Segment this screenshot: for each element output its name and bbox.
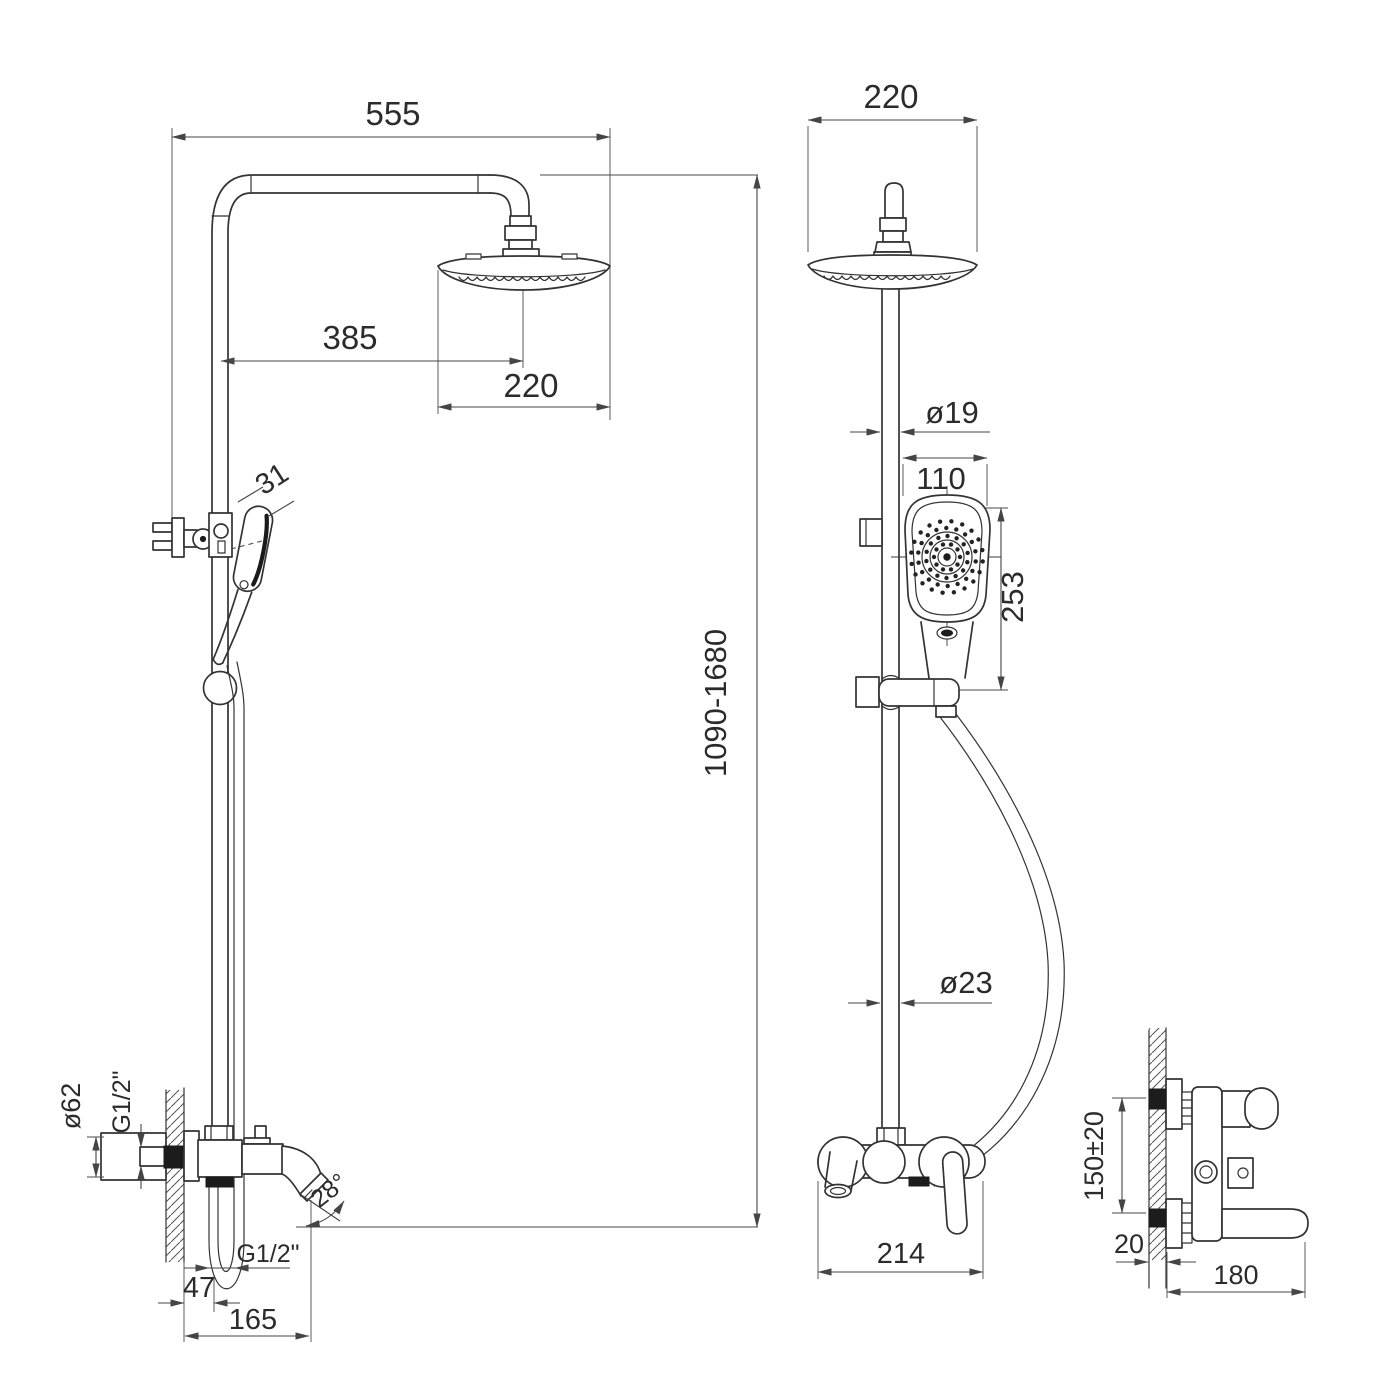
dim-rail-diameter-label: ø19 — [925, 395, 978, 430]
slider-bracket — [856, 676, 959, 718]
dim-head-offset: 385 — [221, 319, 523, 361]
mixer-detail-handle — [1245, 1088, 1278, 1129]
side-view: 220 ø19 110 253 ø23 214 — [808, 78, 1064, 1279]
dim-rail-diameter: ø19 — [850, 395, 990, 432]
spout-outlet — [825, 1185, 851, 1198]
dim-head-width-label: 220 — [863, 78, 918, 115]
rain-shower-head-side — [808, 255, 977, 289]
dim-spout-reach: 165 — [185, 1304, 309, 1336]
dim-head-offset-label: 385 — [322, 319, 377, 356]
technical-drawing: 555 385 220 31 1090-1680 ø62 G1/2" — [0, 0, 1400, 1400]
dim-hand-shower-length-label: 253 — [995, 571, 1030, 623]
dim-escutcheon-diameter: ø62 — [56, 1083, 104, 1177]
shower-hose-side — [929, 714, 1064, 1186]
dim-inlet-spacing: 150±20 — [1079, 1098, 1146, 1213]
wall-supply-connection — [101, 1131, 199, 1181]
dim-head-width: 220 — [808, 78, 977, 120]
dim-hose-thread: G1/2" — [184, 1240, 300, 1268]
shower-column-pipe — [212, 175, 529, 1128]
dim-inlet-spacing-label: 150±20 — [1079, 1111, 1109, 1201]
dim-hand-shower-length: 253 — [995, 508, 1030, 690]
hose-outlet-front — [206, 1177, 233, 1187]
dim-arm-width: 555 — [172, 95, 610, 137]
dim-pipe-diameter-label: ø23 — [939, 965, 992, 1000]
wall-bracket — [153, 513, 232, 557]
hand-shower-side-view — [891, 486, 1001, 678]
wall-section-front — [166, 1088, 184, 1262]
hose-outlet-side — [909, 1177, 929, 1186]
mixer-side-view: 150±20 20 180 — [1079, 1028, 1308, 1298]
dim-wall-thickness-label: 20 — [1114, 1229, 1144, 1259]
wall-section-detail — [1149, 1028, 1166, 1288]
dim-spout-offset: 47 — [158, 1272, 240, 1304]
wall-seal — [164, 1146, 184, 1168]
front-view: 555 385 220 31 1090-1680 ø62 G1/2" — [56, 95, 758, 1342]
dim-escutcheon-diameter-label: ø62 — [56, 1083, 86, 1130]
rain-head-pivot-knob — [874, 183, 911, 259]
rain-shower-head-front — [438, 254, 610, 290]
dim-arm-width-label: 555 — [365, 95, 420, 132]
dim-hose-thread-label: G1/2" — [236, 1240, 299, 1268]
dim-hand-shower-diameter: 31 — [238, 457, 294, 516]
dim-hand-shower-width-label: 110 — [916, 461, 965, 496]
dim-head-diameter-label: 220 — [503, 367, 558, 404]
dim-spout-offset-label: 47 — [183, 1272, 215, 1304]
mixer-valve — [863, 1141, 905, 1183]
mixer-detail-spout — [1222, 1209, 1308, 1238]
dim-column-height-label: 1090-1680 — [698, 629, 733, 777]
dim-head-diameter: 220 — [438, 367, 610, 407]
dim-mixer-width-label: 214 — [877, 1238, 925, 1270]
shower-hose-front — [209, 662, 244, 1289]
mixer-detail-body — [1192, 1087, 1308, 1241]
mixer-side-front — [818, 1128, 985, 1234]
mixer-detail-diverter — [1228, 1158, 1253, 1188]
hand-shower-holder-hook — [860, 519, 882, 546]
dim-mixer-width: 214 — [818, 1238, 983, 1272]
dim-hand-shower-width: 110 — [903, 458, 987, 496]
dim-column-height: 1090-1680 — [698, 175, 757, 1227]
dim-mixer-depth-label: 180 — [1213, 1260, 1258, 1290]
rain-head-connector — [503, 216, 539, 258]
drawing-page: 555 385 220 31 1090-1680 ø62 G1/2" — [0, 0, 1400, 1400]
dim-pipe-diameter: ø23 — [848, 965, 993, 1003]
dim-wall-thread-label: G1/2" — [108, 1070, 136, 1133]
dim-spout-reach-label: 165 — [229, 1304, 277, 1336]
dim-mixer-depth: 180 — [1167, 1242, 1305, 1298]
dim-hand-shower-diameter-label: 31 — [250, 457, 294, 501]
